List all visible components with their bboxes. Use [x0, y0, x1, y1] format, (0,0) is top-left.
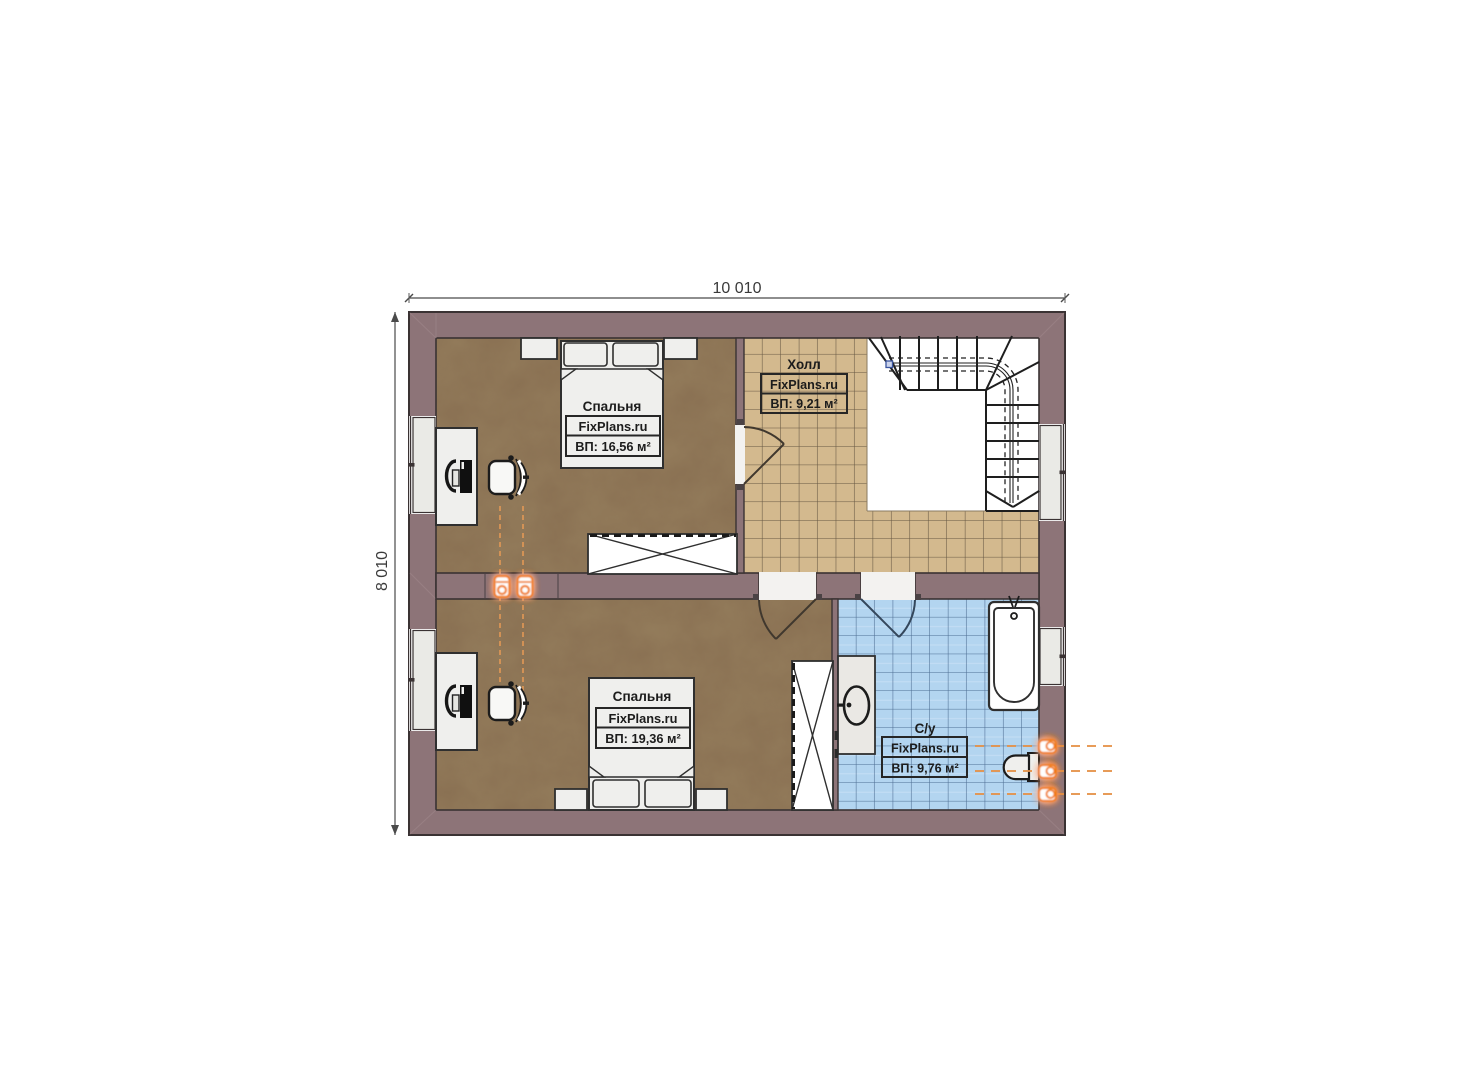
svg-text:FixPlans.ru: FixPlans.ru	[579, 419, 648, 434]
svg-text:ВП: 19,36 м²: ВП: 19,36 м²	[605, 731, 681, 746]
svg-text:FixPlans.ru: FixPlans.ru	[891, 742, 959, 756]
svg-text:8 010: 8 010	[374, 551, 391, 591]
svg-text:ВП: 9,21 м²: ВП: 9,21 м²	[770, 397, 837, 411]
svg-text:Спальня: Спальня	[583, 399, 642, 414]
svg-text:FixPlans.ru: FixPlans.ru	[770, 378, 838, 392]
svg-text:10 010: 10 010	[713, 280, 762, 297]
svg-text:Спальня: Спальня	[613, 689, 672, 704]
svg-text:FixPlans.ru: FixPlans.ru	[609, 711, 678, 726]
svg-text:Холл: Холл	[787, 357, 821, 372]
svg-text:С/у: С/у	[915, 721, 936, 736]
svg-text:ВП: 9,76 м²: ВП: 9,76 м²	[891, 762, 958, 776]
svg-text:ВП: 16,56 м²: ВП: 16,56 м²	[575, 439, 651, 454]
